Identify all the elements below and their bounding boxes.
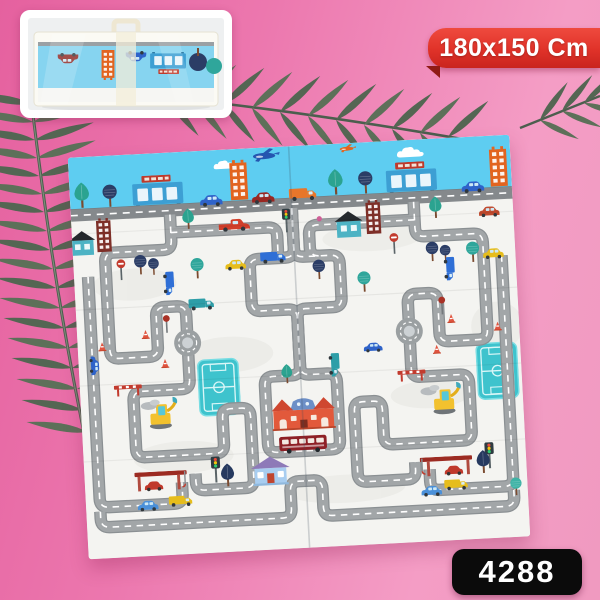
top-right-fern-tips bbox=[520, 71, 600, 143]
bag-strap bbox=[116, 32, 136, 106]
size-ribbon: 180x150 Cm bbox=[428, 28, 600, 68]
play-mat-image bbox=[68, 135, 530, 560]
product-photo: { "labels": { "size": "180x150 Cm", "sku… bbox=[0, 0, 600, 600]
sku-badge: 4288 bbox=[452, 549, 582, 595]
size-label: 180x150 Cm bbox=[439, 34, 589, 63]
tower-building-icon bbox=[229, 160, 248, 201]
inset-photo-folded-mat bbox=[20, 10, 232, 118]
play-mat-artwork bbox=[68, 135, 530, 560]
building-icon bbox=[102, 50, 115, 80]
sku-label: 4288 bbox=[479, 554, 556, 590]
building-icon bbox=[96, 218, 112, 252]
ribbon-curl bbox=[426, 66, 440, 78]
tower-building-icon bbox=[489, 146, 508, 187]
building-icon bbox=[365, 200, 381, 234]
tree-icon bbox=[206, 58, 222, 74]
